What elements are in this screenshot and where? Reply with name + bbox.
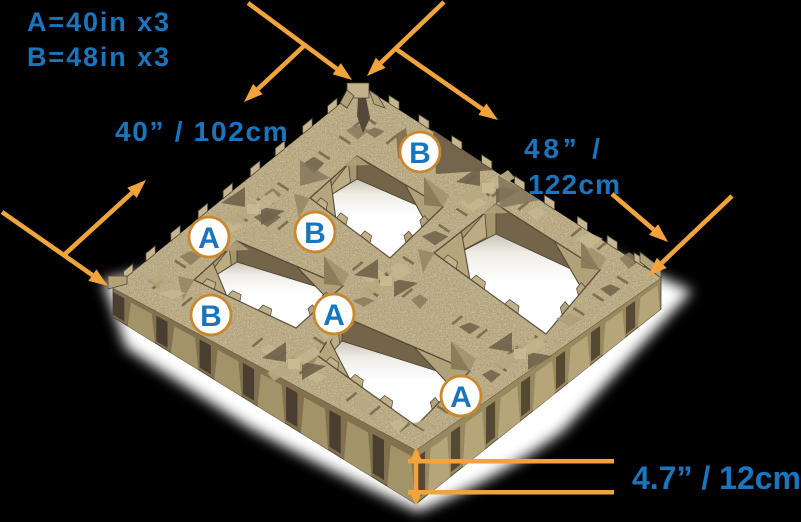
svg-text:A: A (450, 381, 472, 414)
svg-text:A=40in x3: A=40in x3 (27, 7, 171, 37)
svg-text:B: B (200, 300, 222, 333)
svg-text:B: B (304, 217, 326, 250)
svg-text:B=48in x3: B=48in x3 (27, 42, 171, 72)
svg-text:48” /: 48” / (524, 133, 604, 164)
svg-text:A: A (323, 299, 345, 332)
svg-text:122cm: 122cm (528, 169, 621, 200)
svg-text:40” / 102cm: 40” / 102cm (115, 116, 289, 147)
svg-text:4.7” / 12cm: 4.7” / 12cm (632, 460, 801, 496)
svg-text:B: B (409, 137, 431, 170)
svg-text:A: A (198, 222, 220, 255)
